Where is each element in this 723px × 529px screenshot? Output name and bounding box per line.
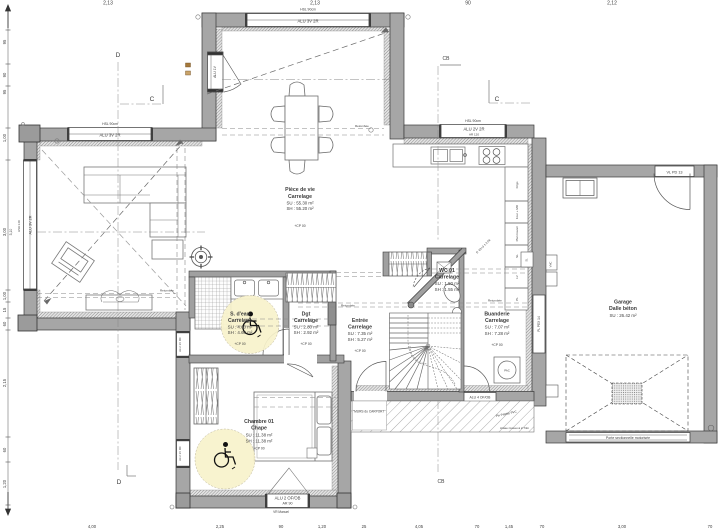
svg-text:ALU 3V 2R: ALU 3V 2R: [29, 215, 33, 234]
svg-text:ALU 1V OF: ALU 1V OF: [178, 446, 182, 461]
svg-text:Arase niveau à 2.74m: Arase niveau à 2.74m: [500, 426, 530, 430]
svg-text:4,05: 4,05: [415, 524, 424, 529]
svg-text:25: 25: [362, 524, 367, 529]
svg-text:1,20: 1,20: [318, 524, 327, 529]
svg-text:SU : 1.50 m²: SU : 1.50 m²: [435, 281, 460, 286]
svg-text:3,10: 3,10: [9, 229, 13, 236]
svg-text:C: C: [150, 96, 155, 103]
svg-text:PL: PL: [515, 297, 519, 301]
svg-text:LV: LV: [515, 275, 519, 278]
svg-text:+CP 00: +CP 00: [354, 349, 365, 353]
svg-text:SL: SL: [515, 254, 519, 258]
svg-text:15: 15: [2, 307, 7, 312]
svg-text:Porte sectionnelle motorisée: Porte sectionnelle motorisée: [606, 436, 650, 440]
svg-text:D: D: [117, 479, 122, 486]
svg-text:Buanderie: Buanderie: [484, 312, 509, 318]
svg-text:Carrelage: Carrelage: [288, 194, 312, 200]
svg-text:SH : 11.38 m²: SH : 11.38 m²: [246, 439, 273, 444]
svg-text:Carrelage: Carrelage: [294, 318, 318, 324]
svg-text:C: C: [495, 96, 500, 103]
svg-text:SL: SL: [525, 258, 529, 262]
svg-text:2,13: 2,13: [103, 1, 113, 7]
svg-text:SH : 1.55 m²: SH : 1.55 m²: [435, 287, 460, 292]
svg-text:1,20: 1,20: [2, 479, 7, 488]
svg-text:+CP 00: +CP 00: [300, 342, 311, 346]
svg-text:Chambre 01: Chambre 01: [244, 419, 274, 425]
svg-text:WC 01: WC 01: [439, 268, 455, 274]
svg-text:HSL 90cm: HSL 90cm: [300, 8, 316, 12]
svg-text:1,00: 1,00: [2, 291, 7, 300]
svg-text:4,00: 4,00: [88, 524, 97, 529]
svg-text:2,15: 2,15: [2, 378, 7, 387]
svg-text:SU : 7.35 m²: SU : 7.35 m²: [348, 331, 373, 336]
svg-text:Pièce de vie: Pièce de vie: [285, 187, 315, 193]
svg-text:+CP 00: +CP 00: [294, 224, 305, 228]
svg-text:Garage: Garage: [614, 300, 632, 306]
svg-text:1,45: 1,45: [505, 524, 514, 529]
svg-text:D: D: [116, 52, 121, 59]
svg-text:90: 90: [2, 72, 7, 77]
svg-text:ALU 2 OF/OB: ALU 2 OF/OB: [275, 496, 301, 501]
svg-text:2,25: 2,25: [216, 524, 225, 529]
svg-text:60: 60: [2, 321, 7, 326]
svg-text:AR 120: AR 120: [469, 133, 479, 137]
svg-text:+CP 00: +CP 00: [491, 343, 502, 347]
svg-text:Carrelage: Carrelage: [435, 275, 459, 281]
svg-text:70: 70: [708, 524, 713, 529]
svg-text:VL PD 13: VL PD 13: [666, 171, 682, 175]
svg-text:Entrée: Entrée: [352, 318, 368, 324]
svg-text:SH : 4.60 m²: SH : 4.60 m²: [228, 330, 253, 335]
svg-text:AR 90: AR 90: [283, 502, 293, 506]
svg-text:SU : 4.60 m²: SU : 4.60 m²: [228, 325, 253, 330]
svg-text:Retombée: Retombée: [341, 304, 355, 308]
svg-text:70: 70: [475, 524, 480, 529]
svg-text:1,00: 1,00: [2, 133, 7, 142]
svg-text:Plan travail: Plan travail: [515, 226, 519, 241]
svg-text:SH : 7.28 m²: SH : 7.28 m²: [485, 331, 510, 336]
svg-text:PAC: PAC: [504, 369, 510, 373]
svg-text:SH : 55.20 m²: SH : 55.20 m²: [286, 206, 314, 211]
svg-text:Retombée: Retombée: [160, 289, 174, 293]
svg-text:SH : 2.92 m²: SH : 2.92 m²: [294, 330, 319, 335]
svg-text:3,00: 3,00: [618, 524, 627, 529]
svg-text:90: 90: [465, 1, 471, 7]
svg-text:Carrelage: Carrelage: [348, 325, 372, 331]
svg-text:ALU 1V: ALU 1V: [213, 65, 217, 77]
svg-text:+CP 00: +CP 00: [253, 447, 264, 451]
svg-text:VR Manuel: VR Manuel: [273, 510, 289, 514]
svg-text:Carrelage: Carrelage: [228, 318, 252, 324]
svg-text:3,00: 3,00: [2, 227, 7, 236]
svg-text:ALU 4 OF/OB: ALU 4 OF/OB: [470, 396, 492, 400]
svg-text:ALU 2V 2R: ALU 2V 2R: [464, 127, 485, 132]
svg-text:60: 60: [2, 447, 7, 452]
svg-text:PL PEX 14: PL PEX 14: [537, 316, 541, 332]
svg-text:CB: CB: [438, 479, 446, 485]
svg-text:Frigo: Frigo: [515, 181, 519, 188]
svg-text:SU : 55.30 m²: SU : 55.30 m²: [286, 201, 314, 206]
svg-text:Chape: Chape: [251, 426, 267, 432]
svg-text:SH : 5.27 m²: SH : 5.27 m²: [348, 337, 373, 342]
svg-text:2,13: 2,13: [310, 1, 320, 7]
svg-text:SU : 7.07 m²: SU : 7.07 m²: [485, 325, 510, 330]
svg-text:95: 95: [2, 89, 7, 94]
svg-text:Retombée: Retombée: [355, 124, 369, 128]
svg-text:"MURS du CARPORT": "MURS du CARPORT": [353, 410, 386, 414]
svg-text:95: 95: [2, 39, 7, 44]
svg-text:VMC: VMC: [549, 261, 553, 267]
svg-text:Carrelage: Carrelage: [485, 318, 509, 324]
svg-text:Dgt: Dgt: [302, 312, 311, 318]
svg-text:HSA 1.00: HSA 1.00: [17, 220, 21, 232]
svg-text:SU : 11.38 m²: SU : 11.38 m²: [246, 433, 273, 438]
svg-text:S. d'eau: S. d'eau: [230, 312, 250, 318]
svg-text:90: 90: [279, 524, 284, 529]
svg-text:ALU 3V 2R: ALU 3V 2R: [100, 133, 121, 138]
svg-text:SU : 26.42 m²: SU : 26.42 m²: [609, 313, 637, 318]
svg-text:70: 70: [540, 524, 545, 529]
svg-text:Retombée: Retombée: [488, 299, 502, 303]
svg-text:ALU 1V OF: ALU 1V OF: [178, 337, 182, 352]
svg-text:+CP 00: +CP 00: [234, 342, 245, 346]
svg-text:HSL 90cm: HSL 90cm: [102, 122, 118, 126]
svg-text:2,12: 2,12: [607, 1, 617, 7]
svg-text:Four + MO: Four + MO: [515, 204, 519, 219]
svg-text:ALU 3V 2R: ALU 3V 2R: [298, 19, 319, 24]
svg-text:Dalle béton: Dalle béton: [609, 306, 637, 312]
svg-text:HSL 90cm: HSL 90cm: [465, 119, 481, 123]
svg-text:CB: CB: [443, 56, 451, 62]
svg-text:SU : 2.80 m²: SU : 2.80 m²: [294, 325, 319, 330]
